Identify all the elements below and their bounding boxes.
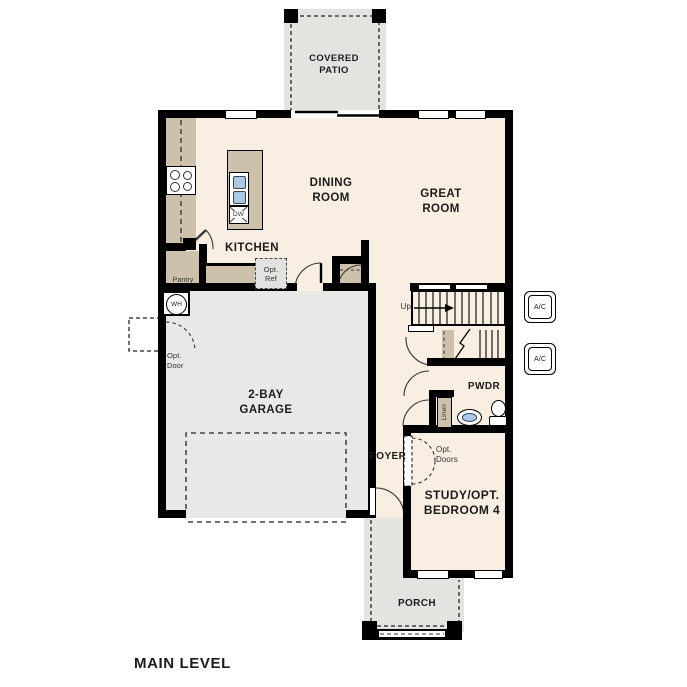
wall-closet-right bbox=[361, 240, 369, 291]
wall-garage-east bbox=[368, 291, 376, 518]
wall-pwdr-stub-v bbox=[429, 390, 436, 428]
garage-entry-opening bbox=[297, 283, 323, 291]
sink-basin bbox=[233, 176, 246, 189]
window-study-1 bbox=[417, 570, 449, 579]
label-opt-door: Opt. Door bbox=[167, 351, 201, 371]
window-study-2 bbox=[474, 570, 503, 579]
burner-icon bbox=[170, 170, 180, 180]
ac-unit-inner: A/C bbox=[528, 295, 552, 319]
opt-ref-box: Opt. Ref bbox=[255, 258, 287, 289]
ac-label: A/C bbox=[534, 304, 546, 311]
front-door-leaf bbox=[369, 487, 376, 516]
room-label-great: GREAT ROOM bbox=[401, 187, 481, 216]
wall-kitchen-stub bbox=[158, 243, 186, 251]
counter-end-block bbox=[183, 238, 196, 250]
burner-icon bbox=[183, 171, 192, 180]
ac-unit-1: A/C bbox=[524, 291, 556, 323]
dishwasher: DW bbox=[229, 206, 249, 224]
room-label-kitchen: KITCHEN bbox=[212, 241, 292, 256]
sink-basin bbox=[233, 191, 246, 204]
room-label-dining: DINING ROOM bbox=[291, 176, 371, 205]
dishwasher-label: DW bbox=[231, 211, 246, 218]
floor-plan: DW WH Opt. Ref Linen A/C A/C COVERED PAT… bbox=[0, 0, 687, 687]
patio-post-left bbox=[284, 9, 298, 23]
wall-stair-south bbox=[427, 358, 513, 366]
toilet-bowl bbox=[491, 400, 506, 417]
mud-counter bbox=[206, 263, 257, 283]
stair-railing-2 bbox=[455, 284, 488, 290]
pwdr-sink-basin bbox=[462, 413, 477, 422]
coat-closet-shelf bbox=[340, 264, 361, 283]
room-label-garage: 2-BAY GARAGE bbox=[226, 388, 306, 417]
porch-post-right bbox=[447, 621, 462, 640]
wall-closet-left bbox=[332, 256, 340, 291]
kitchen-sink bbox=[229, 172, 249, 206]
pwdr-sink bbox=[457, 409, 482, 426]
water-heater-circle: WH bbox=[166, 294, 187, 315]
label-stairs-up: Up bbox=[394, 302, 411, 312]
water-heater-label: WH bbox=[171, 301, 182, 308]
ac-unit-inner: A/C bbox=[528, 347, 552, 371]
room-label-study: STUDY/OPT. BEDROOM 4 bbox=[402, 488, 522, 518]
ac-label: A/C bbox=[534, 356, 546, 363]
range-cooktop bbox=[166, 166, 196, 195]
linen-closet: Linen bbox=[437, 397, 452, 428]
burner-icon bbox=[170, 182, 180, 192]
stair-railing-1 bbox=[418, 284, 451, 290]
label-opt-doors: Opt. Doors bbox=[436, 445, 472, 466]
porch-post-left bbox=[362, 621, 377, 640]
room-label-pwdr: PWDR bbox=[454, 381, 514, 394]
opt-ref-label: Opt. Ref bbox=[264, 265, 279, 283]
patio-slider-opening bbox=[291, 110, 379, 118]
room-label-covered-patio: COVERED PATIO bbox=[294, 53, 374, 77]
room-label-foyer: FOYER bbox=[358, 451, 418, 464]
window-kitchen bbox=[225, 110, 257, 119]
patio-post-right bbox=[372, 9, 386, 23]
water-heater: WH bbox=[162, 291, 190, 316]
toilet-tank bbox=[489, 416, 507, 426]
stair-closet-shelf bbox=[442, 330, 454, 359]
linen-label: Linen bbox=[441, 404, 448, 420]
burner-icon bbox=[183, 182, 192, 191]
label-pantry: Pantry bbox=[163, 277, 203, 286]
wall-garage-south-left bbox=[158, 510, 186, 518]
window-greatroom-1 bbox=[418, 110, 449, 119]
stair-landing-nose bbox=[408, 325, 434, 332]
wall-pwdr-south bbox=[403, 425, 513, 433]
plan-title: MAIN LEVEL bbox=[134, 654, 334, 673]
window-greatroom-2 bbox=[455, 110, 486, 119]
porch-region-upper bbox=[364, 518, 403, 632]
room-label-porch: PORCH bbox=[387, 598, 447, 611]
porch-step bbox=[379, 631, 445, 637]
ac-unit-2: A/C bbox=[524, 343, 556, 375]
